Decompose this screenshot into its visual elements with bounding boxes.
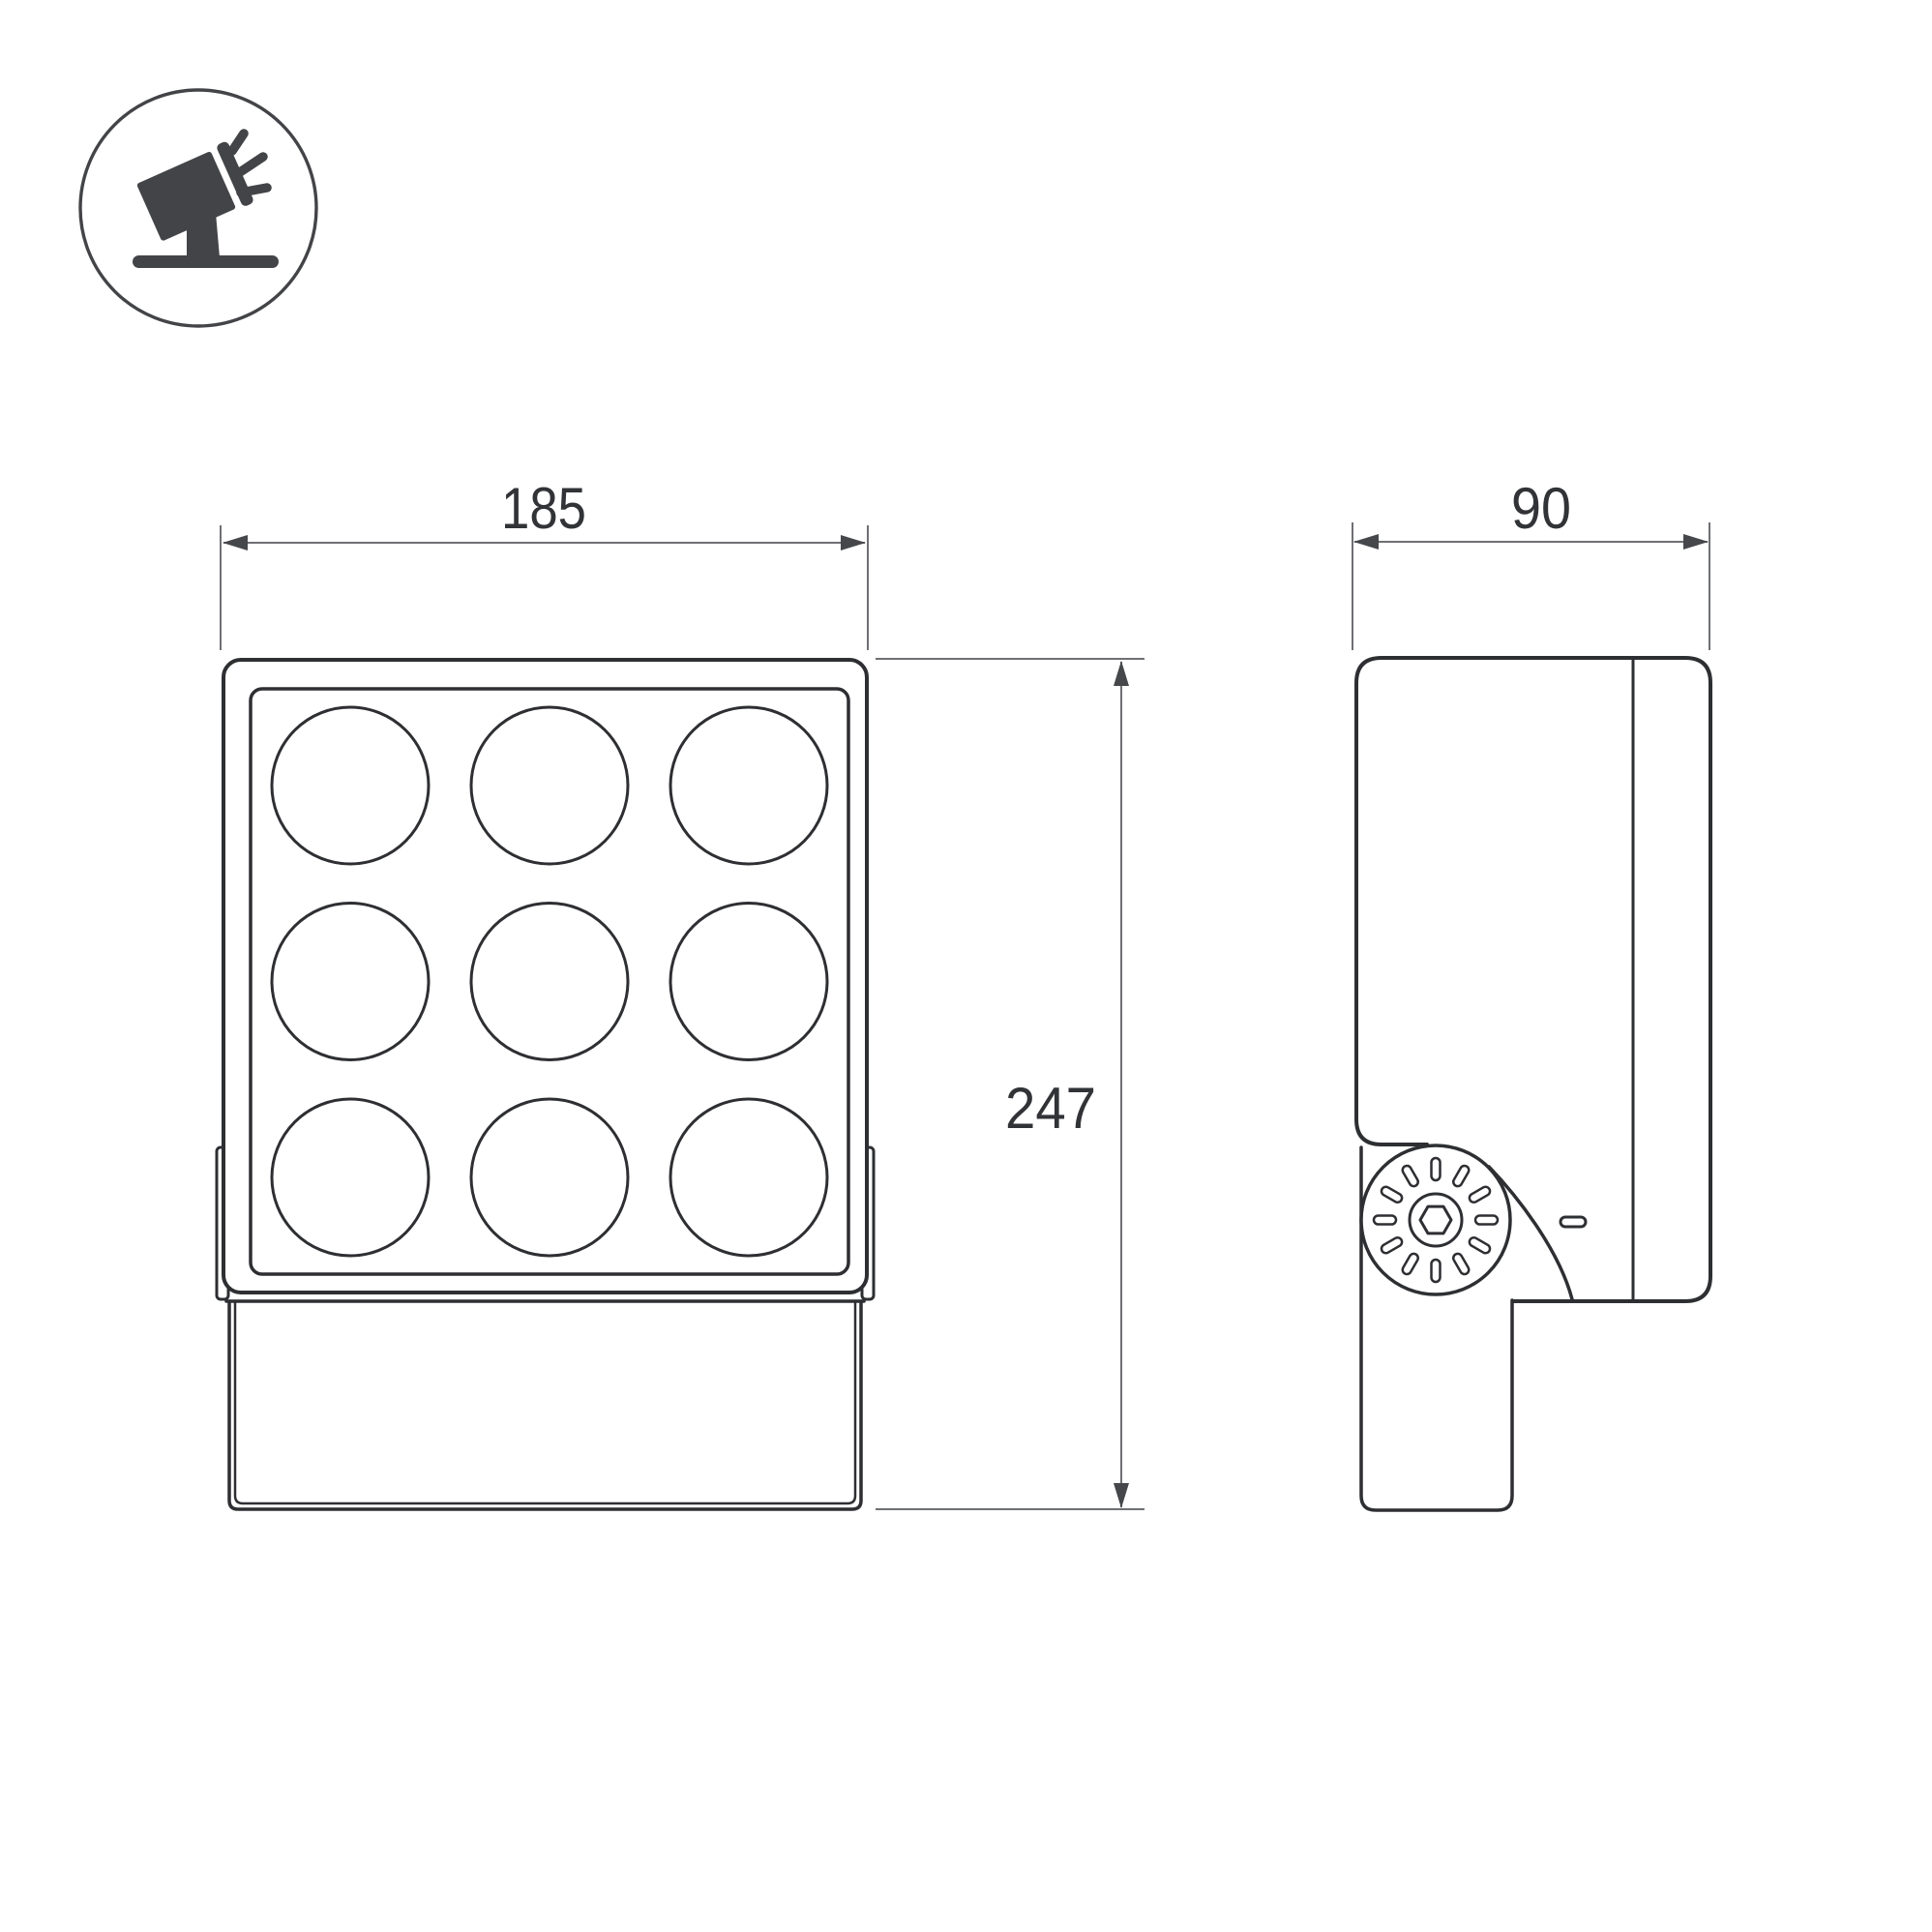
depth-dimension: 90 — [1352, 476, 1709, 650]
mount-plate-inner — [235, 1301, 855, 1503]
arrowhead-right — [1683, 534, 1709, 550]
depth-value: 90 — [1511, 476, 1571, 541]
arrowhead-top — [1114, 661, 1129, 686]
front-housing — [223, 660, 867, 1293]
icon-stand-stem — [187, 213, 220, 257]
arrowhead-left — [1353, 534, 1379, 550]
front-view — [217, 660, 874, 1509]
floodlight-tilt-icon — [80, 90, 316, 326]
icon-stand-base — [133, 255, 279, 268]
arrowhead-left — [223, 535, 248, 550]
mount-plate-outer — [229, 1301, 861, 1509]
width-value: 185 — [501, 476, 586, 541]
side-view — [1356, 658, 1710, 1510]
height-value: 247 — [1005, 1076, 1096, 1141]
arrowhead-bottom — [1114, 1483, 1129, 1508]
width-dimension: 185 — [221, 476, 868, 650]
arrowhead-right — [841, 535, 866, 550]
technical-drawing: 185 247 90 — [0, 0, 1932, 1932]
drawing-canvas: 185 247 90 — [0, 0, 1932, 1932]
height-dimension: 247 — [876, 659, 1144, 1509]
